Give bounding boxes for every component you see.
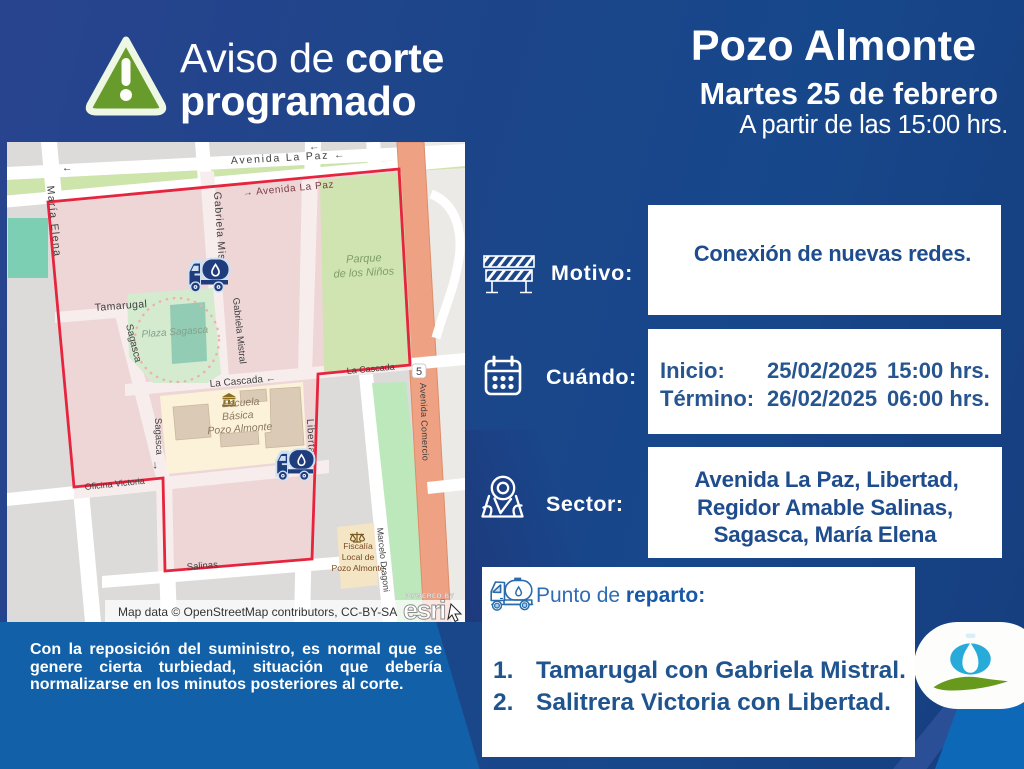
svg-text:esri: esri [403,595,445,622]
svg-text:5: 5 [416,366,422,378]
svg-text:←: ← [308,142,319,153]
svg-text:Fiscalía: Fiscalía [343,541,373,551]
svg-text:Local de: Local de [342,552,375,562]
svg-text:←: ← [62,162,73,174]
svg-text:Map data © OpenStreetMap contr: Map data © OpenStreetMap contributors, C… [118,605,397,619]
svg-text:→: → [150,460,162,471]
svg-text:Pozo Almonte: Pozo Almonte [331,563,384,573]
svg-text:Básica: Básica [222,409,254,423]
svg-text:Sagasca: Sagasca [152,418,164,456]
svg-text:Parque: Parque [346,252,382,266]
